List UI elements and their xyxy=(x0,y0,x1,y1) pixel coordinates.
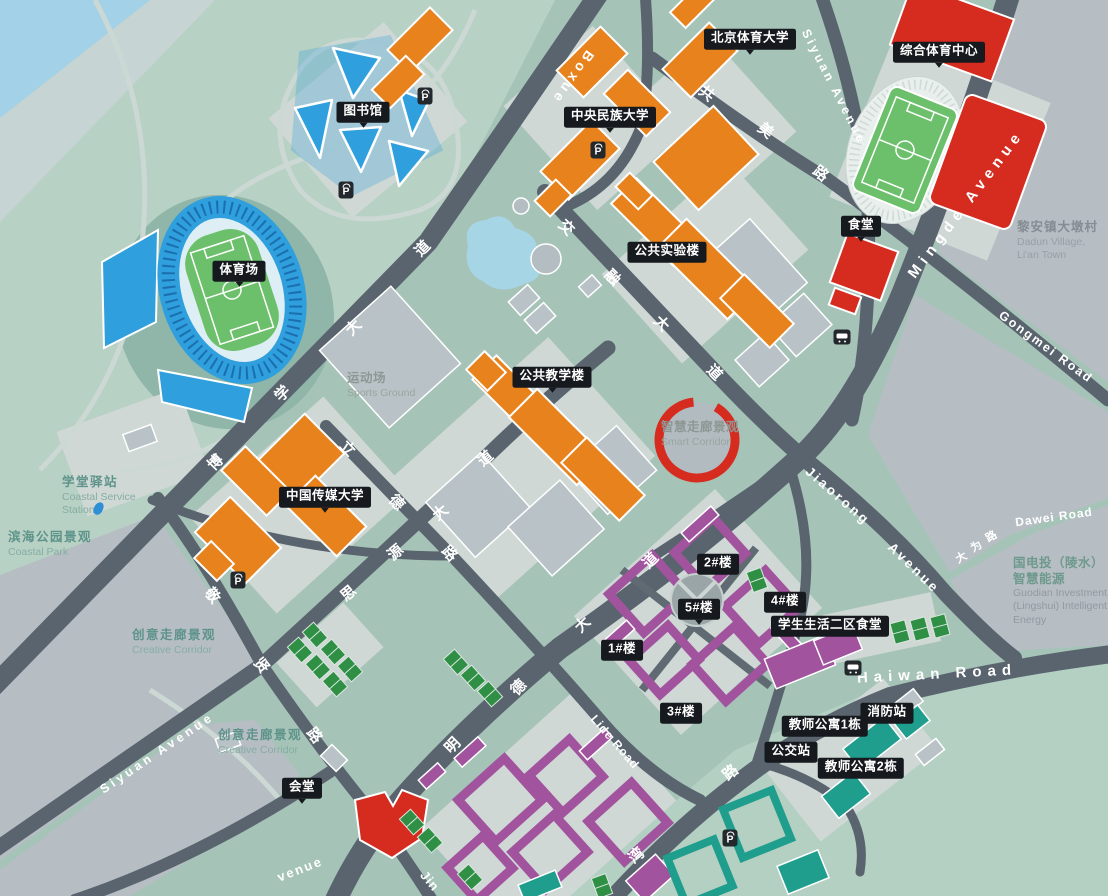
label-bsu-text: 北京体育大学 xyxy=(711,31,789,45)
map-geometry: .bo{fill:#e8821d;stroke:#fff;stroke-widt… xyxy=(0,0,1108,896)
label-teaching-building[interactable]: 公共教学楼 xyxy=(512,367,591,388)
parking-letter: P xyxy=(342,186,349,198)
parking-letter: P xyxy=(726,834,733,846)
area-coastal-park-en: Coastal Park xyxy=(8,546,92,559)
area-dadun-en1: Dadun Village, xyxy=(1017,236,1098,249)
label-dorm-3-text: 3#楼 xyxy=(667,705,695,719)
parking-icon[interactable]: P xyxy=(418,88,433,105)
label-dorm-5[interactable]: 5#楼 xyxy=(678,599,720,620)
parking-icon[interactable]: P xyxy=(231,572,246,589)
label-dorm-5-text: 5#楼 xyxy=(685,601,713,615)
label-bus-stop[interactable]: 公交站 xyxy=(764,742,817,763)
label-stadium[interactable]: 体育场 xyxy=(212,261,265,282)
area-guodian-en1: Guodian Investment xyxy=(1013,587,1107,600)
pointer-icon xyxy=(359,122,367,127)
parking-icon[interactable]: P xyxy=(339,182,354,199)
label-dorm-4-text: 4#楼 xyxy=(771,594,799,608)
area-dadun-zh: 黎安镇大墩村 xyxy=(1017,220,1098,236)
area-creative-2-en: Creative Corridor xyxy=(218,744,302,757)
parking-letter: P xyxy=(594,146,601,158)
label-dorm-2[interactable]: 2#楼 xyxy=(697,554,739,575)
area-guodian-en3: Energy xyxy=(1013,614,1107,627)
label-bsu[interactable]: 北京体育大学 xyxy=(704,29,796,50)
parking-icon[interactable]: P xyxy=(591,142,606,159)
pointer-icon xyxy=(548,387,556,392)
label-sports-center[interactable]: 综合体育中心 xyxy=(893,42,985,63)
label-bus-stop-text: 公交站 xyxy=(771,744,810,758)
area-creative-corridor-2: 创意走廊景观 Creative Corridor xyxy=(218,728,302,757)
area-coastal-park-zh: 滨海公园景观 xyxy=(8,530,92,546)
label-muc-text: 中央民族大学 xyxy=(571,109,649,123)
area-sports-ground: 运动场 Sports Ground xyxy=(347,371,415,400)
label-library[interactable]: 图书馆 xyxy=(336,102,389,123)
bus-stop-icon[interactable] xyxy=(845,661,862,676)
label-lab-text: 公共实验楼 xyxy=(634,244,699,258)
pointer-icon xyxy=(298,798,306,803)
label-library-text: 图书馆 xyxy=(343,104,382,118)
label-teacher-1-text: 教师公寓1栋 xyxy=(789,718,861,732)
label-teaching-text: 公共教学楼 xyxy=(519,369,584,383)
label-muc[interactable]: 中央民族大学 xyxy=(564,107,656,128)
label-dorm-1-text: 1#楼 xyxy=(608,642,636,656)
label-hall-text: 会堂 xyxy=(289,780,315,794)
area-smart-en: Smart Corridor xyxy=(661,436,739,449)
label-stadium-text: 体育场 xyxy=(219,263,258,277)
parking-letter: P xyxy=(421,92,428,104)
label-teacher-apt-2[interactable]: 教师公寓2栋 xyxy=(818,758,904,779)
pointer-icon xyxy=(935,62,943,67)
area-sports-ground-zh: 运动场 xyxy=(347,371,415,387)
area-creative-1-zh: 创意走廊景观 xyxy=(132,628,216,644)
label-teacher-2-text: 教师公寓2栋 xyxy=(825,760,897,774)
area-service-station-zh: 学堂驿站 xyxy=(62,475,136,491)
label-fire-station[interactable]: 消防站 xyxy=(860,703,913,724)
area-guodian: 国电投（陵水） 智慧能源 Guodian Investment (Lingshu… xyxy=(1013,556,1107,627)
label-dorm-3[interactable]: 3#楼 xyxy=(660,703,702,724)
pointer-icon xyxy=(321,507,329,512)
pointer-icon xyxy=(695,619,703,624)
label-dorm-2-text: 2#楼 xyxy=(704,556,732,570)
area-coastal-park: 滨海公园景观 Coastal Park xyxy=(8,530,92,559)
area-guodian-en2: (Lingshui) Intelligent xyxy=(1013,600,1107,613)
label-teacher-apt-1[interactable]: 教师公寓1栋 xyxy=(782,716,868,737)
pointer-icon xyxy=(606,127,614,132)
area-sports-ground-en: Sports Ground xyxy=(347,387,415,400)
area-dadun-village: 黎安镇大墩村 Dadun Village, Li'an Town xyxy=(1017,220,1098,262)
label-canteen-text: 食堂 xyxy=(848,218,874,232)
label-cuc-text: 中国传媒大学 xyxy=(286,489,364,503)
pointer-icon xyxy=(235,281,243,286)
label-sports-center-text: 综合体育中心 xyxy=(900,44,978,58)
area-creative-1-en: Creative Corridor xyxy=(132,644,216,657)
label-fire-text: 消防站 xyxy=(867,705,906,719)
label-canteen[interactable]: 食堂 xyxy=(841,216,881,237)
area-dadun-en2: Li'an Town xyxy=(1017,249,1098,262)
area-smart-corridor: 智慧走廊景观 Smart Corridor xyxy=(661,420,739,449)
bus-stop-icon[interactable] xyxy=(834,330,851,345)
label-dorm-4[interactable]: 4#楼 xyxy=(764,592,806,613)
area-smart-zh: 智慧走廊景观 xyxy=(661,420,739,436)
label-life2-canteen[interactable]: 学生生活二区食堂 xyxy=(771,616,889,637)
area-creative-2-zh: 创意走廊景观 xyxy=(218,728,302,744)
area-guodian-zh2: 智慧能源 xyxy=(1013,572,1107,588)
label-hall[interactable]: 会堂 xyxy=(282,778,322,799)
pointer-icon xyxy=(746,49,754,54)
label-lab-building[interactable]: 公共实验楼 xyxy=(627,242,706,263)
area-guodian-zh1: 国电投（陵水） xyxy=(1013,556,1107,572)
label-dorm-1[interactable]: 1#楼 xyxy=(601,640,643,661)
pointer-icon xyxy=(857,236,865,241)
parking-icon[interactable]: P xyxy=(723,830,738,847)
parking-letter: P xyxy=(234,576,241,588)
label-life2-text: 学生生活二区食堂 xyxy=(778,618,882,632)
area-creative-corridor-1: 创意走廊景观 Creative Corridor xyxy=(132,628,216,657)
label-cuc[interactable]: 中国传媒大学 xyxy=(279,487,371,508)
campus-map: .bo{fill:#e8821d;stroke:#fff;stroke-widt… xyxy=(0,0,1108,896)
